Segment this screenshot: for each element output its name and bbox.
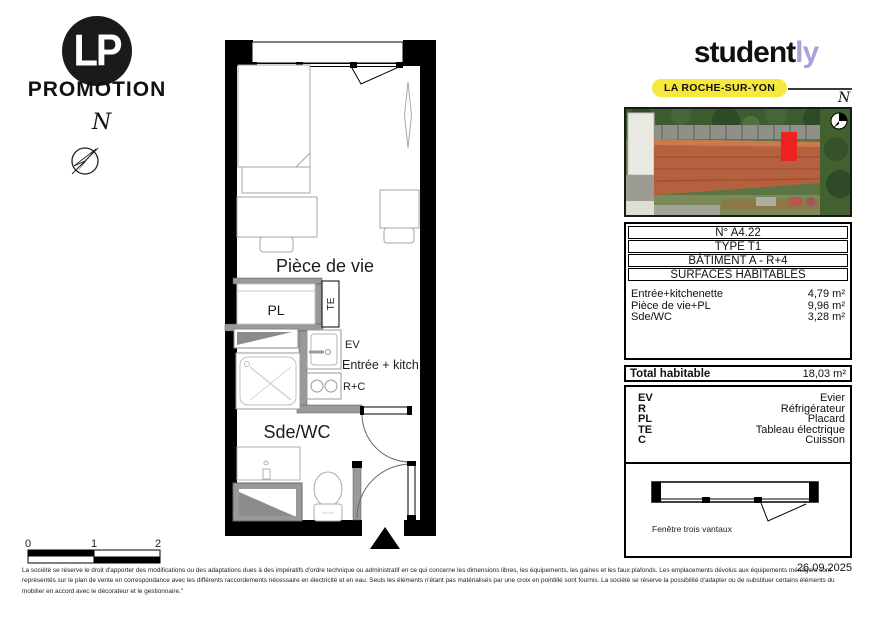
lp-promotion-logo: LP xyxy=(62,16,132,86)
plan-sheet: LP PROMOTION N xyxy=(0,0,876,620)
label-electrical-panel: TE xyxy=(326,297,337,310)
furniture xyxy=(237,65,419,252)
unit-number: N° A4.22 xyxy=(628,226,848,239)
studently-wordmark-black: student xyxy=(694,36,795,69)
site-aerial-photo xyxy=(624,107,852,217)
label-bathroom: Sde/WC xyxy=(263,422,330,442)
scale-0: 0 xyxy=(25,538,31,550)
location-badge: LA ROCHE-SUR-YON xyxy=(652,79,787,97)
cooktop xyxy=(307,373,341,399)
surface-row: Entrée+kitchenette 4,79 m² xyxy=(631,289,845,301)
label-closet: PL xyxy=(267,302,284,318)
floor-plan: Pièce de vie PL TE EV Entrée + kitch. R+… xyxy=(215,30,445,555)
legend-row: C Cuisson xyxy=(626,435,850,446)
compass-rose-icon xyxy=(66,142,104,180)
closet xyxy=(237,281,339,327)
total-value: 18,03 m² xyxy=(803,368,846,380)
studently-wordmark-purple: ly xyxy=(795,36,818,69)
label-living-room: Pièce de vie xyxy=(276,256,374,276)
label-fridge-cooking: R+C xyxy=(343,381,365,393)
doors xyxy=(357,406,416,521)
surface-label: Entrée+kitchenette xyxy=(631,289,723,301)
unit-info-table: N° A4.22 TYPE T1 BÂTIMENT A - R+4 SURFAC… xyxy=(624,222,852,360)
legend-key: PL xyxy=(626,414,678,425)
chair xyxy=(260,237,293,252)
window-detail-drawing xyxy=(648,478,830,526)
studently-logo: studently xyxy=(640,36,872,70)
desk xyxy=(380,190,419,228)
unit-location-marker xyxy=(781,132,797,161)
north-letter-right: N xyxy=(838,90,850,106)
total-label: Total habitable xyxy=(630,368,710,380)
legend-row: EV Evier xyxy=(626,393,850,404)
radiator xyxy=(405,82,412,148)
legal-disclaimer: La société se réserve le droit d'apporte… xyxy=(22,566,856,597)
total-habitable-row: Total habitable 18,03 m² xyxy=(624,365,852,382)
lp-promotion-wordmark: PROMOTION xyxy=(16,78,178,102)
surfaces-header: SURFACES HABITABLES xyxy=(628,268,848,281)
desk-chair xyxy=(384,228,414,243)
kitchenette xyxy=(307,330,341,399)
legend-key: R xyxy=(626,404,678,415)
legend-key: C xyxy=(626,435,678,446)
unit-type: TYPE T1 xyxy=(628,240,848,253)
unit-building: BÂTIMENT A - R+4 xyxy=(628,254,848,267)
lp-logo-text: LP xyxy=(73,26,120,76)
legend: EV Evier R Réfrigérateur PL Placard TE T… xyxy=(624,385,852,462)
window-detail-caption: Fenêtre trois vantaux xyxy=(652,524,732,534)
surface-value: 3,28 m² xyxy=(808,312,845,324)
window-detail-box xyxy=(624,462,852,558)
label-sink: EV xyxy=(345,339,360,351)
wall-cap xyxy=(352,461,362,468)
north-letter-left: N xyxy=(92,110,111,135)
entrance-door xyxy=(408,463,415,518)
scale-2: 2 xyxy=(155,538,161,550)
surface-value: 4,79 m² xyxy=(808,289,845,301)
surface-label: Sde/WC xyxy=(631,312,672,324)
surface-row: Sde/WC 3,28 m² xyxy=(631,312,845,324)
aerial-photo-graphic xyxy=(626,109,850,215)
bed-foot xyxy=(242,167,310,193)
surface-list: Entrée+kitchenette 4,79 m² Pièce de vie+… xyxy=(628,289,848,324)
interior-door xyxy=(362,407,410,414)
legend-key: TE xyxy=(626,425,678,436)
legend-value: Evier xyxy=(678,393,850,404)
label-entry-kitchen: Entrée + kitch. xyxy=(342,358,422,372)
table xyxy=(237,197,317,237)
scale-bar: 0 1 2 xyxy=(20,536,168,568)
scale-1: 1 xyxy=(91,538,97,550)
washbasin xyxy=(237,447,300,480)
legend-value: Cuisson xyxy=(678,435,850,446)
toilet xyxy=(314,472,342,506)
bed xyxy=(238,65,310,167)
legend-key: EV xyxy=(626,393,678,404)
entrance-arrow xyxy=(370,527,400,549)
